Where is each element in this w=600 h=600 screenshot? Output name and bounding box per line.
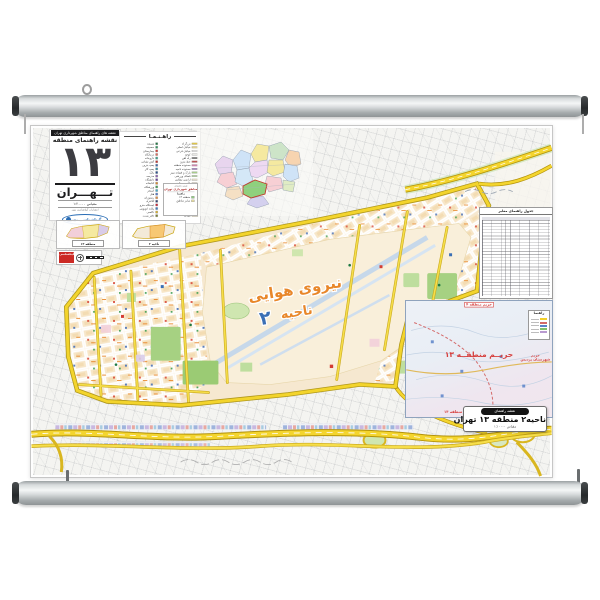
- map-cartouche: نقشه راهنمای ناحیه۲ منطقه ۱۳ تهران مقیاس…: [463, 406, 547, 432]
- locator-zone-2: ناحیه ۲: [122, 220, 186, 249]
- locator-caption-text: منطقه ۱۳: [73, 241, 103, 247]
- harim-label-east: حریم شهرستان پردیس: [520, 354, 550, 362]
- locator-caption-text: ناحیه ۲: [139, 241, 169, 247]
- legend-symbol-swatch: [155, 171, 158, 174]
- infobox-row-label: سایر مناطق: [176, 199, 190, 202]
- locator-caption: منطقه ۱۳: [72, 240, 104, 247]
- infobox-row: سایر مناطق: [164, 199, 197, 203]
- harim-legend-row: [529, 330, 549, 333]
- street-index-table: جدول راهنمای معابر: [479, 207, 553, 299]
- map-sheet: نیروی هوایی ناحیه ۲ نقشه های راهنمای منا…: [30, 125, 553, 478]
- cartouche-pill: نقشه راهنمای: [481, 408, 529, 415]
- legend-symbol-swatch: [155, 164, 158, 167]
- legend-symbol-swatch: [155, 168, 158, 171]
- publisher-text: انتشارات گیتاشناسی نوین: [51, 208, 119, 212]
- stadium-oval: [223, 303, 249, 319]
- legend-symbol-swatch: [155, 186, 158, 189]
- legend-symbol-swatch: [155, 178, 158, 181]
- divider-rule: [58, 207, 112, 208]
- locator-zone-silhouette: [125, 222, 185, 242]
- product-photo: نیروی هوایی ناحیه ۲ نقشه های راهنمای منا…: [0, 0, 600, 600]
- cartouche-scale-wrap: مقیاس ۱:۱۰۰۰۰: [464, 424, 546, 429]
- harim-label-center: حریــم منطقــه ۱۳: [445, 350, 513, 359]
- legend-title: راهـنـمـا: [149, 134, 172, 140]
- legend-symbol-swatch: [155, 157, 158, 160]
- infobox-swatch: [191, 200, 194, 202]
- tehran-inset-infobox: نقشه راهنمای مناطق شهرداری تهران راهنما …: [163, 183, 198, 216]
- bottom-rail: [14, 481, 586, 505]
- infobox-swatch: [191, 196, 194, 198]
- tehran-districts-inset: [197, 130, 313, 216]
- legend-label: دفتر پست: [143, 214, 154, 217]
- street-index-header: جدول راهنمای معابر: [480, 208, 552, 215]
- cartouche-header: نقشه راهنمای: [481, 408, 529, 414]
- brand-text: گیتاشناسی: [59, 252, 74, 257]
- city-name: تـــهـــران: [51, 186, 119, 199]
- infobox-rows: منطقه ۱۳ سایر مناطق: [164, 195, 197, 202]
- north-arrow-icon: [76, 254, 84, 262]
- street-index-title: جدول راهنمای معابر: [480, 208, 552, 215]
- cartouche-scale: مقیاس ۱:۱۰۰۰۰: [464, 424, 546, 429]
- rail-end-cap: [581, 96, 588, 116]
- cartouche-title: ناحیه۲ منطقه ۱۳ تهران: [464, 415, 546, 424]
- hanger-wire: [582, 114, 584, 134]
- legend-symbol-swatch: [155, 207, 158, 210]
- scale-bar: [86, 256, 104, 259]
- legend-symbol-swatch: [155, 142, 158, 145]
- tehran-districts-art: [197, 130, 313, 216]
- legend-symbol-swatch: [155, 211, 158, 214]
- legend-symbol-swatch: [155, 182, 158, 185]
- rail-end-cap: [581, 482, 588, 504]
- series-title: نقشه های راهنمای مناطق شهرداری تهران: [51, 130, 119, 136]
- infobox-title: مناطق شهرداری تهران: [164, 187, 197, 191]
- locator-caption: ناحیه ۲: [138, 240, 170, 247]
- legend-symbol-swatch: [155, 175, 158, 178]
- harim-label-east-line2: شهرستان پردیس: [520, 358, 550, 362]
- scale-line: مقیاس ۱:۲۰۰۰۰: [51, 202, 119, 206]
- harim-inset: حریم منطقه ۴ حریــم منطقــه ۱۳ حریم شهرس…: [405, 300, 553, 418]
- harim-legend-placeholder: [531, 329, 539, 330]
- harim-legend-placeholder: [531, 325, 539, 326]
- hanging-ring-icon: [82, 84, 92, 95]
- legend-item: دفتر پست: [122, 214, 158, 218]
- street-index-rows: [482, 217, 550, 296]
- brand-box: گیتاشناسی: [59, 252, 74, 263]
- legend-rule: [174, 136, 196, 137]
- legend-rule: [124, 136, 146, 137]
- legend-symbol-swatch: [155, 196, 158, 199]
- legend-symbols-column: مسجد حسینیه بیمارستان درمانگاه: [122, 142, 158, 218]
- legend-symbol-swatch: [155, 214, 158, 217]
- harim-road: [406, 362, 551, 374]
- harim-label-north: حریم منطقه ۴: [464, 302, 493, 307]
- legend-symbol-swatch: [155, 160, 158, 163]
- harim-legend-swatch: [540, 322, 547, 324]
- harim-legend-box: راهنما: [528, 310, 550, 340]
- hanger-wire: [24, 114, 26, 134]
- title-panel: نقشه های راهنمای مناطق شهرداری تهران نقش…: [49, 129, 121, 221]
- locator-district-13: منطقه ۱۳: [56, 220, 120, 249]
- rail-end-cap: [12, 96, 19, 116]
- locator-district-silhouette: [59, 222, 119, 242]
- scale-box: گیتاشناسی ۱:۱۰۰۰۰: [56, 250, 102, 265]
- harim-legend-placeholder: [531, 322, 539, 323]
- top-rail: [14, 95, 586, 117]
- harim-legend-swatch: [540, 318, 547, 320]
- series-bar: نقشه های راهنمای مناطق شهرداری تهران: [51, 130, 119, 136]
- harim-legend-rows: [529, 317, 549, 333]
- harim-legend-placeholder: [531, 319, 539, 320]
- publisher-line: انتشارات گیتاشناسی نوین: [51, 208, 119, 212]
- harim-legend-swatch: [540, 328, 547, 330]
- legend-symbol-swatch: [155, 189, 158, 192]
- harim-legend-title: راهنما: [532, 311, 546, 315]
- legend-symbol-swatch: [155, 150, 158, 153]
- legend-symbol-swatch: [155, 153, 158, 156]
- harim-legend-swatch: [540, 331, 547, 333]
- harim-legend-swatch: [540, 325, 547, 327]
- divider-rule: [58, 200, 112, 201]
- rail-end-cap: [12, 482, 19, 504]
- legend-symbol-swatch: [155, 204, 158, 207]
- district-number: ۱۳: [51, 144, 119, 182]
- legend-header: راهـنـمـا: [120, 132, 200, 141]
- scale-text: مقیاس ۱:۲۰۰۰۰: [51, 202, 119, 206]
- legend-symbol-swatch: [155, 200, 158, 203]
- legend-symbol-swatch: [155, 193, 158, 196]
- harim-legend-placeholder: [531, 332, 539, 333]
- legend-symbol-swatch: [155, 146, 158, 149]
